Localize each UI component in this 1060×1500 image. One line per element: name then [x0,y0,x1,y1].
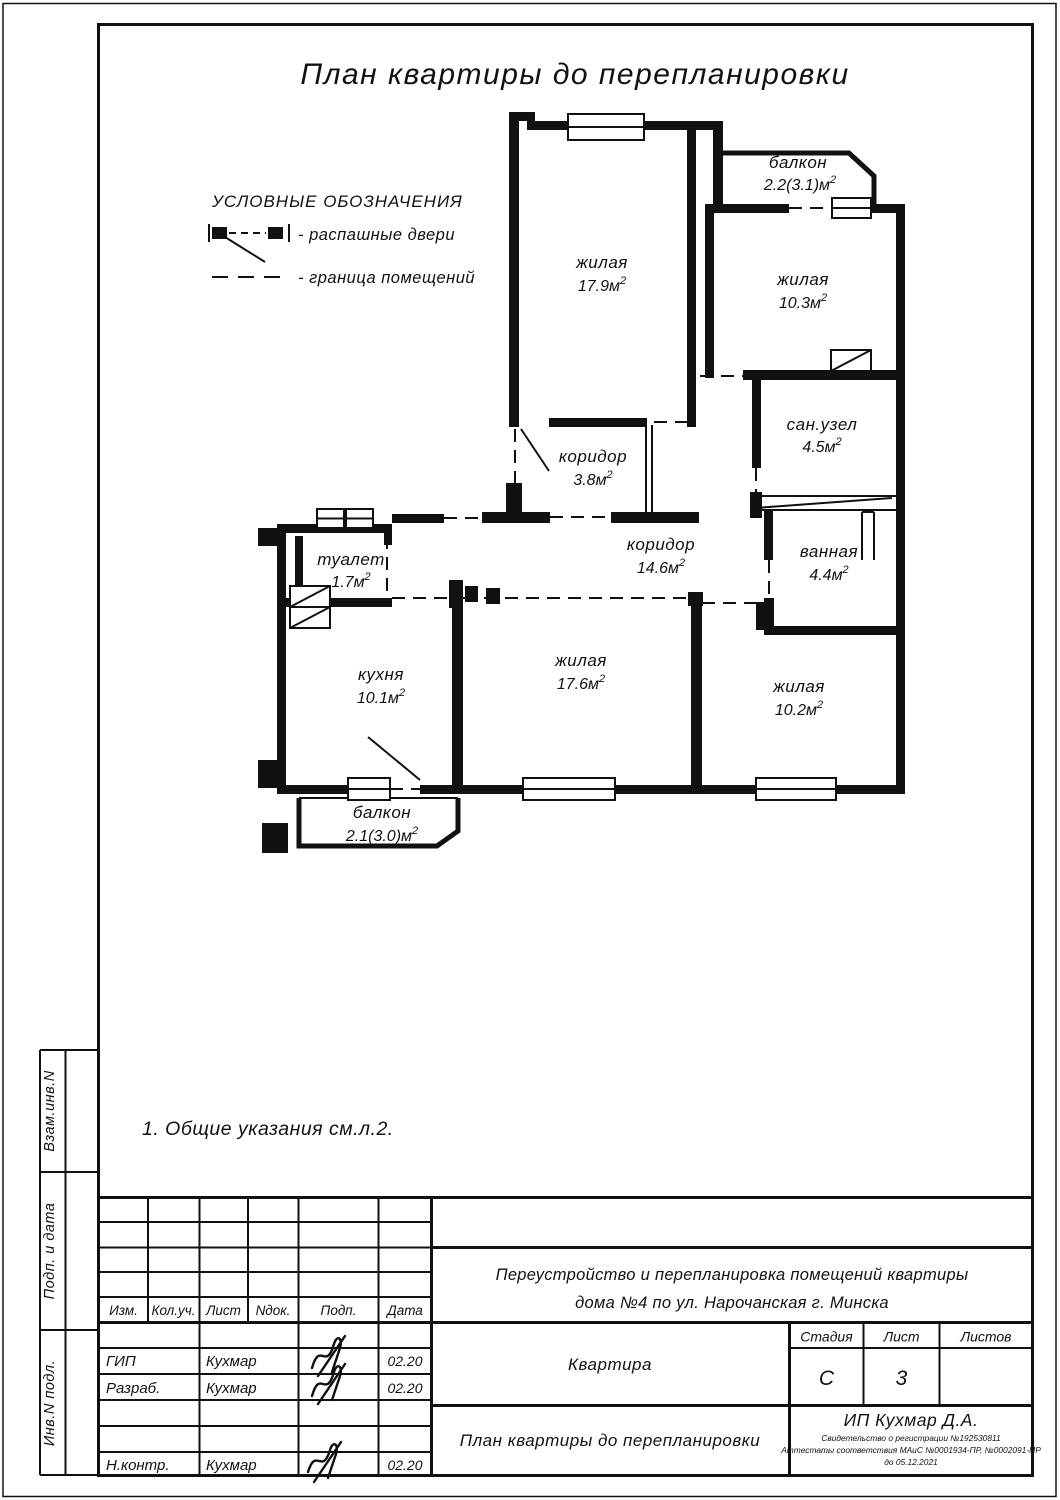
room-area: 4.5м2 [802,436,841,456]
swing-door-icon [209,224,289,262]
row-role: ГИП [106,1353,136,1370]
sidebar-label: Взам.инв.N [42,1070,58,1151]
room-name: жилая [554,651,607,670]
stage-value: С [819,1367,835,1390]
room-area: 10.3м2 [779,292,827,312]
col-podp: Подп. [321,1303,357,1318]
sheet-value: 3 [896,1367,908,1390]
room-area: 4.4м2 [809,564,848,584]
room-area: 1.7м2 [331,571,370,591]
room-area: 10.2м2 [775,699,823,719]
room-area: 3.8м2 [573,469,612,489]
room-name: ванная [800,542,858,561]
room-zhilaya-179: жилая 17.9м2 [575,253,628,295]
room-name: сан.узел [787,415,858,434]
sheet-canvas: План квартиры до перепланировки УСЛОВНЫЕ… [0,0,1060,1500]
room-name: туалет [317,550,385,569]
project-line2: дома №4 по ул. Нарочанская г. Минска [575,1294,889,1312]
cert-line2: Аттестаты соответствия МАиС №0001934-ПР,… [780,1445,1041,1455]
row-name: Кухмар [206,1457,257,1474]
col-list: Лист [205,1303,241,1318]
row-date: 02.20 [387,1353,422,1369]
room-area: 10.1м2 [357,687,405,707]
drawing-sheet: План квартиры до перепланировки УСЛОВНЫЕ… [0,0,1060,1500]
drawing-title: План квартиры до перепланировки [460,1431,760,1450]
title-block: Изм. Кол.уч. Лист Nдок. Подп. Дата ГИП К… [98,1198,1041,1483]
room-area: 14.6м2 [637,557,685,577]
project-line1: Переустройство и перепланировка помещени… [496,1266,969,1284]
legend-door-label: - распашные двери [298,226,455,244]
room-sanuzel: сан.узел 4.5м2 [787,415,858,456]
col-ndok: Nдок. [256,1303,291,1318]
room-zhilaya-103: жилая 10.3м2 [776,270,829,312]
room-name: жилая [575,253,628,272]
room-name: жилая [772,677,825,696]
page-title: План квартиры до перепланировки [300,58,849,91]
row-role: Разраб. [106,1380,160,1397]
room-labels: жилая 17.9м2 балкон 2.2(3.1)м2 жилая 10.… [317,153,858,845]
sidebar-stamp: Взам.инв.N Подп. и дата Инв.N подл. [40,1050,98,1475]
vent-shaft-symbols [290,350,871,628]
room-name: жилая [776,270,829,289]
room-balkon-22: балкон 2.2(3.1)м2 [763,153,836,194]
room-balkon-21: балкон 2.1(3.0)м2 [345,803,418,845]
room-zhilaya-176: жилая 17.6м2 [554,651,607,693]
sheet-label: Лист [882,1329,919,1345]
room-area: 17.9м2 [578,275,626,295]
legend-boundary-label: - граница помещений [298,269,475,287]
stage-label: Стадия [800,1329,853,1345]
object-name: Квартира [568,1355,652,1374]
staff-row-nkontr: Н.контр. Кухмар 02.20 [106,1457,423,1474]
col-data: Дата [385,1303,423,1318]
staff-row-razrab: Разраб. Кухмар 02.20 [106,1380,423,1397]
room-koridor-38: коридор 3.8м2 [559,447,627,489]
row-role: Н.контр. [106,1457,170,1474]
room-vannaya: ванная 4.4м2 [800,542,858,584]
room-area: 2.1(3.0)м2 [345,825,418,845]
cert-line1: Свидетельство о регистрации №192530811 [821,1433,1000,1443]
general-note: 1. Общие указания см.л.2. [142,1118,394,1140]
row-name: Кухмар [206,1380,257,1397]
staff-row-gip: ГИП Кухмар 02.20 [106,1353,423,1370]
room-koridor-146: коридор 14.6м2 [627,535,695,577]
legend: УСЛОВНЫЕ ОБОЗНАЧЕНИЯ - распашные двери -… [209,192,475,287]
row-name: Кухмар [206,1353,257,1370]
room-zhilaya-102: жилая 10.2м2 [772,677,825,719]
room-name: кухня [358,665,404,684]
room-name: коридор [559,447,627,466]
signatures [308,1336,345,1482]
sidebar-label: Подп. и дата [42,1203,58,1300]
row-date: 02.20 [387,1457,422,1473]
room-area: 2.2(3.1)м2 [763,174,836,194]
col-koluch: Кол.уч. [151,1303,195,1318]
company-name: ИП Кухмар Д.А. [844,1410,979,1430]
signature-mark [312,1364,345,1404]
col-izm: Изм. [109,1303,138,1318]
sheets-label: Листов [960,1329,1012,1345]
room-name: балкон [769,153,827,172]
legend-heading: УСЛОВНЫЕ ОБОЗНАЧЕНИЯ [211,192,463,211]
room-area: 17.6м2 [557,673,605,693]
room-kuhnya: кухня 10.1м2 [357,665,405,707]
room-name: балкон [353,803,411,822]
room-tualet: туалет 1.7м2 [317,550,385,591]
room-name: коридор [627,535,695,554]
sidebar-label: Инв.N подл. [42,1360,58,1446]
frame-border [99,25,1033,1476]
row-date: 02.20 [387,1380,422,1396]
cert-line3: до 05.12.2021 [884,1457,938,1467]
